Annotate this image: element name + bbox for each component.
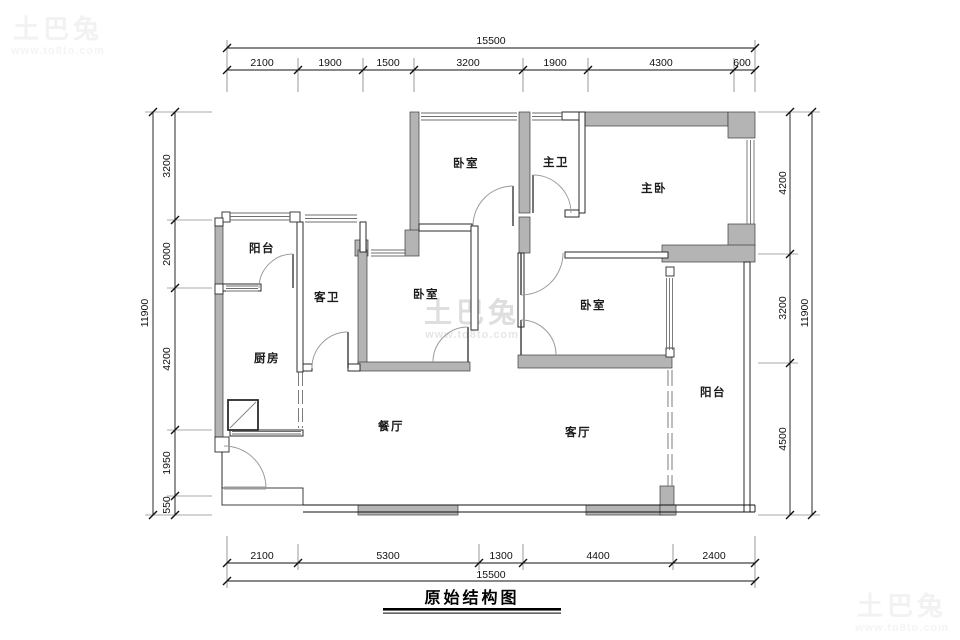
title-underline-thin xyxy=(383,613,561,614)
dimension-chain-left: 11900 3200 2000 4200 1950 550 xyxy=(139,108,212,519)
window-guest-bath-top xyxy=(305,215,357,222)
watermark-bottom-right: 土巴兔 www.to8to.com xyxy=(854,591,949,634)
dim-left-seg: 2000 xyxy=(161,242,173,266)
dim-left-seg: 4200 xyxy=(161,347,173,371)
dim-bottom-seg: 2100 xyxy=(250,550,274,562)
dim-left-total: 11900 xyxy=(139,299,151,328)
room-label-guest-bath: 客卫 xyxy=(313,290,340,304)
dim-bottom-total: 15500 xyxy=(476,569,505,581)
kitchen-flue xyxy=(228,400,258,430)
drawing-title: 原始结构图 xyxy=(383,588,561,614)
room-label-master-bath: 主卫 xyxy=(543,155,569,169)
watermark-url: www.to8to.com xyxy=(424,329,519,341)
room-label-balcony-left: 阳台 xyxy=(249,241,275,255)
dimension-chain-bottom: 2100 5300 1300 4400 2400 15500 xyxy=(223,536,759,588)
room-label-living: 客厅 xyxy=(564,425,591,439)
dim-top-seg: 2100 xyxy=(250,57,274,69)
title-underline-thick xyxy=(383,608,561,611)
window-balcony-left-top xyxy=(230,213,290,220)
door-master-bath xyxy=(533,175,571,213)
dim-top-seg: 4300 xyxy=(649,57,673,69)
window-bedroom-right xyxy=(667,278,673,350)
dimension-chain-right: 4200 3200 4500 11900 xyxy=(758,108,820,519)
room-label-bedroom-mid: 卧室 xyxy=(413,287,439,301)
watermark-brand: 土巴兔 xyxy=(13,14,103,44)
room-label-kitchen: 厨房 xyxy=(254,351,280,365)
window-master-bath xyxy=(532,113,562,120)
dim-right-seg: 4200 xyxy=(777,171,789,195)
sliding-door-kitchen xyxy=(299,372,303,428)
sliding-door-balcony-right xyxy=(668,370,672,486)
dim-top-seg: 3200 xyxy=(456,57,480,69)
dim-right-seg: 3200 xyxy=(777,296,789,320)
room-label-dining: 餐厅 xyxy=(377,419,404,433)
dim-top-seg: 1900 xyxy=(543,57,567,69)
dim-bottom-seg: 1300 xyxy=(489,550,513,562)
floor-plan-drawing: 土巴兔 www.to8to.com 土巴兔 www.to8to.com 土巴兔 … xyxy=(0,0,960,640)
dimension-chain-top: 15500 2100 1900 1500 3200 1900 4300 600 xyxy=(223,35,759,92)
watermark-top-left: 土巴兔 www.to8to.com xyxy=(10,14,105,57)
watermark-url: www.to8to.com xyxy=(10,45,105,57)
floor-plan-page: 土巴兔 www.to8to.com 土巴兔 www.to8to.com 土巴兔 … xyxy=(0,0,960,640)
door-entry xyxy=(224,446,266,488)
watermark-url: www.to8to.com xyxy=(854,622,949,634)
title-text: 原始结构图 xyxy=(424,588,519,607)
dim-top-seg: 1500 xyxy=(376,57,400,69)
door-master-bedroom xyxy=(521,253,563,295)
window-bedroom-mid-top xyxy=(371,250,406,256)
room-label-bedroom-top: 卧室 xyxy=(453,156,479,170)
dim-left-seg: 1950 xyxy=(161,451,173,475)
dim-left-seg: 550 xyxy=(161,496,173,514)
window-bedroom-top xyxy=(421,113,517,120)
dim-bottom-seg: 4400 xyxy=(586,550,610,562)
dim-left-seg: 3200 xyxy=(161,154,173,178)
dim-top-total: 15500 xyxy=(476,35,505,47)
dim-top-seg: 600 xyxy=(733,57,751,69)
room-label-balcony-right: 阳台 xyxy=(700,385,726,399)
door-bedroom-right xyxy=(521,320,556,355)
room-label-master-bedroom: 主卧 xyxy=(641,181,667,195)
watermark-brand: 土巴兔 xyxy=(857,591,947,621)
dim-right-seg: 4500 xyxy=(777,427,789,451)
dim-bottom-seg: 5300 xyxy=(376,550,400,562)
door-bedroom-top xyxy=(473,186,513,226)
dim-bottom-seg: 2400 xyxy=(702,550,726,562)
door-balcony-left xyxy=(259,254,293,288)
dim-right-total: 11900 xyxy=(799,299,811,328)
dim-top-seg: 1900 xyxy=(318,57,342,69)
door-guest-bath xyxy=(312,332,348,368)
room-label-bedroom-right: 卧室 xyxy=(580,298,606,312)
window-master-bedroom-right xyxy=(747,140,754,224)
